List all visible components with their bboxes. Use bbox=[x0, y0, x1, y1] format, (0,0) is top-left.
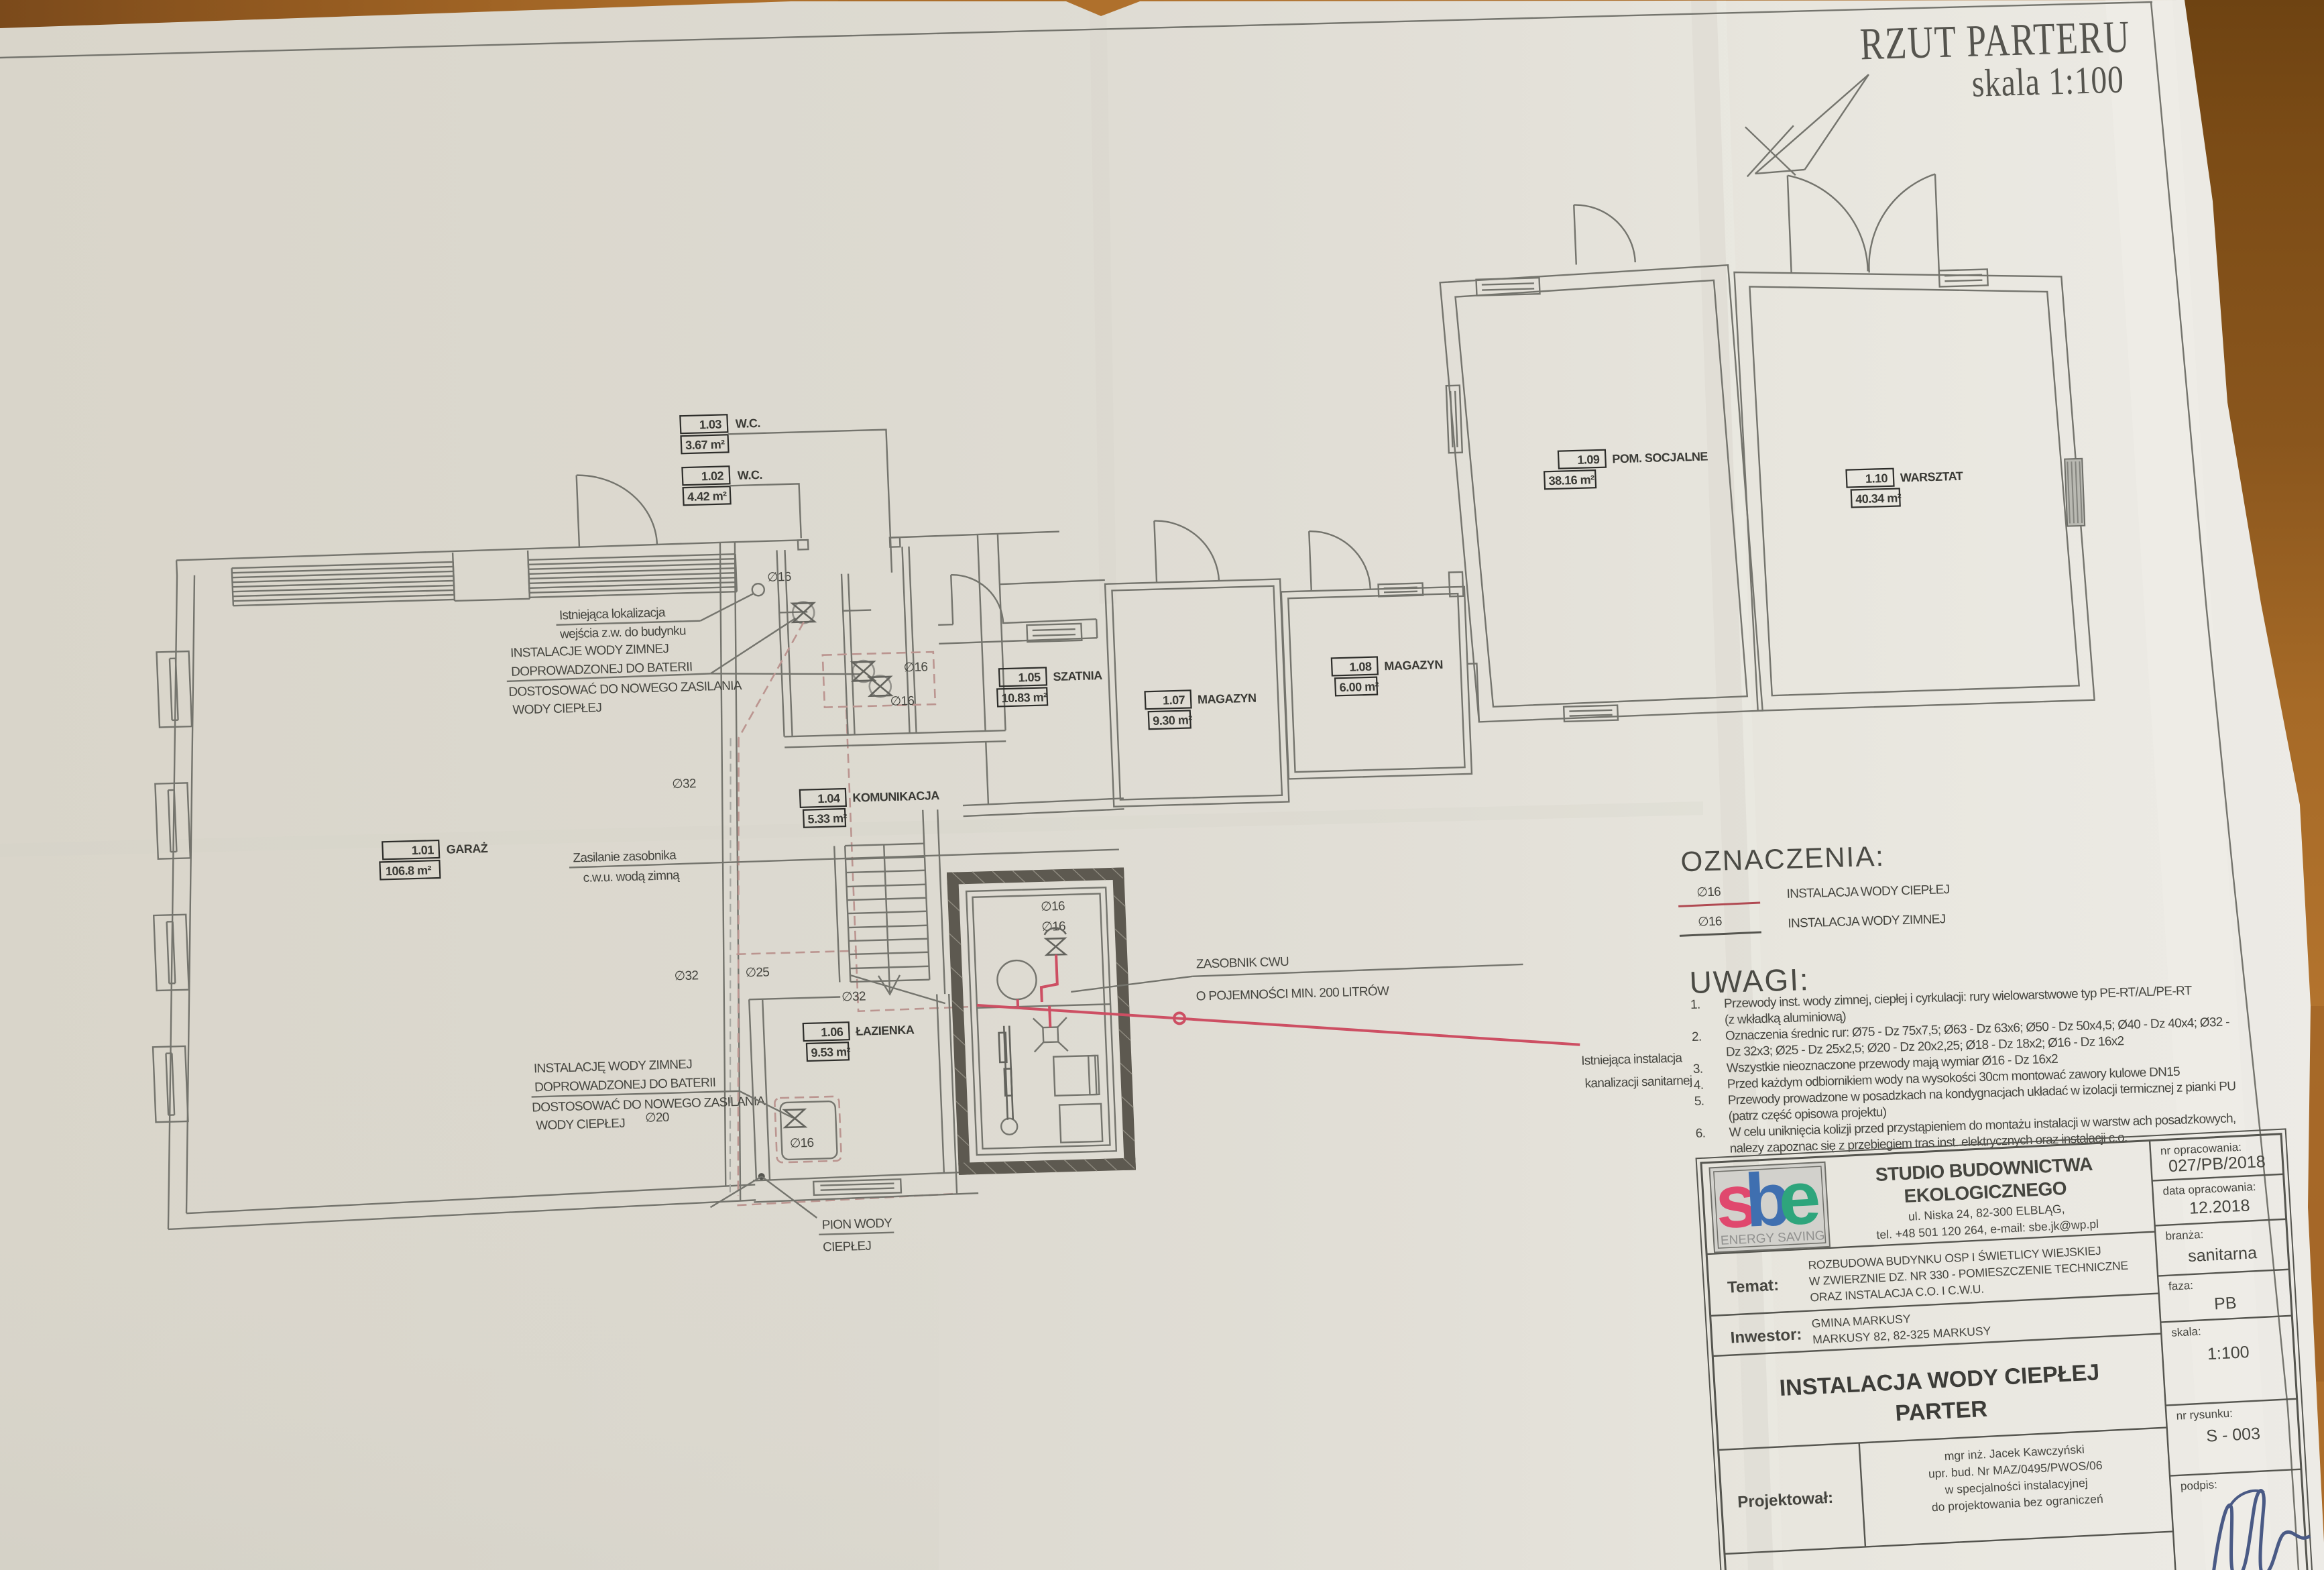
svg-text:PB: PB bbox=[2213, 1294, 2237, 1314]
svg-text:1.10: 1.10 bbox=[1865, 471, 1888, 486]
svg-text:S - 003: S - 003 bbox=[2206, 1424, 2261, 1446]
svg-text:1.03: 1.03 bbox=[699, 418, 721, 432]
svg-text:1.: 1. bbox=[1690, 998, 1700, 1012]
svg-text:4.: 4. bbox=[1693, 1078, 1703, 1092]
svg-text:skala:: skala: bbox=[2171, 1325, 2202, 1339]
svg-text:OZNACZENIA:: OZNACZENIA: bbox=[1680, 840, 1885, 877]
svg-text:Zasilanie zasobnika: Zasilanie zasobnika bbox=[573, 848, 677, 865]
svg-text:sanitarna: sanitarna bbox=[2187, 1243, 2258, 1266]
svg-text:W.C.: W.C. bbox=[738, 468, 763, 482]
svg-text:2.: 2. bbox=[1692, 1030, 1702, 1044]
svg-text:WODY CIEPŁEJ: WODY CIEPŁEJ bbox=[536, 1117, 626, 1133]
svg-text:branża:: branża: bbox=[2165, 1228, 2204, 1243]
svg-text:1.07: 1.07 bbox=[1163, 693, 1185, 708]
svg-text:Istniejąca instalacja: Istniejąca instalacja bbox=[1581, 1051, 1683, 1068]
svg-text:1.01: 1.01 bbox=[411, 843, 434, 857]
svg-text:1.04: 1.04 bbox=[817, 791, 840, 805]
svg-text:6.00 m²: 6.00 m² bbox=[1339, 680, 1379, 695]
svg-text:4.42 m²: 4.42 m² bbox=[687, 489, 728, 504]
svg-text:∅16: ∅16 bbox=[767, 570, 792, 585]
svg-text:GARAŻ: GARAŻ bbox=[446, 842, 488, 856]
svg-text:3.: 3. bbox=[1693, 1062, 1703, 1076]
svg-text:ŁAZIENKA: ŁAZIENKA bbox=[856, 1023, 915, 1038]
svg-text:SZATNIA: SZATNIA bbox=[1053, 669, 1102, 683]
svg-text:W.C.: W.C. bbox=[735, 416, 760, 431]
svg-text:12.2018: 12.2018 bbox=[2189, 1196, 2250, 1217]
svg-text:3.67 m²: 3.67 m² bbox=[685, 437, 725, 452]
svg-text:∅16: ∅16 bbox=[890, 694, 915, 709]
svg-text:∅16: ∅16 bbox=[789, 1136, 814, 1151]
svg-text:∅16: ∅16 bbox=[1698, 915, 1723, 930]
svg-text:POM. SOCJALNE: POM. SOCJALNE bbox=[1612, 449, 1708, 465]
svg-text:Inwestor:: Inwestor: bbox=[1730, 1325, 1802, 1347]
svg-text:ZASOBNIK CWU: ZASOBNIK CWU bbox=[1196, 955, 1289, 972]
svg-text:UWAGI:: UWAGI: bbox=[1689, 962, 1810, 1000]
svg-text:40.34 m²: 40.34 m² bbox=[1855, 491, 1902, 506]
svg-text:PARTER: PARTER bbox=[1894, 1396, 1988, 1426]
svg-text:∅32: ∅32 bbox=[841, 989, 866, 1004]
svg-text:faza:: faza: bbox=[2168, 1279, 2194, 1293]
svg-text:PION WODY: PION WODY bbox=[821, 1217, 892, 1233]
svg-text:1.05: 1.05 bbox=[1018, 671, 1041, 685]
svg-text:9.53 m²: 9.53 m² bbox=[811, 1045, 851, 1060]
svg-text:1.06: 1.06 bbox=[821, 1025, 844, 1039]
svg-text:CIEPŁEJ: CIEPŁEJ bbox=[823, 1239, 872, 1255]
svg-text:6.: 6. bbox=[1695, 1127, 1705, 1141]
svg-text:WODY CIEPŁEJ: WODY CIEPŁEJ bbox=[512, 701, 602, 718]
svg-text:∅32: ∅32 bbox=[672, 777, 697, 791]
svg-text:5.: 5. bbox=[1694, 1095, 1704, 1109]
svg-text:Istniejąca lokalizacja: Istniejąca lokalizacja bbox=[559, 606, 666, 622]
svg-text:38.16 m²: 38.16 m² bbox=[1548, 473, 1594, 488]
svg-text:∅25: ∅25 bbox=[745, 965, 770, 980]
svg-text:9.30 m²: 9.30 m² bbox=[1153, 713, 1193, 728]
svg-text:5.33 m²: 5.33 m² bbox=[807, 811, 848, 826]
svg-text:1.02: 1.02 bbox=[701, 469, 724, 484]
svg-text:MAGAZYN: MAGAZYN bbox=[1384, 658, 1443, 673]
svg-text:1:100: 1:100 bbox=[2207, 1343, 2250, 1363]
svg-text:∅16: ∅16 bbox=[1696, 885, 1721, 900]
svg-text:Temat:: Temat: bbox=[1727, 1276, 1779, 1297]
svg-text:WARSZTAT: WARSZTAT bbox=[1900, 469, 1964, 485]
svg-text:kanalizacji sanitarnej: kanalizacji sanitarnej bbox=[1584, 1074, 1692, 1090]
svg-text:∅16: ∅16 bbox=[1041, 899, 1065, 914]
svg-text:∅32: ∅32 bbox=[674, 968, 699, 983]
svg-text:podpis:: podpis: bbox=[2180, 1478, 2217, 1493]
svg-text:skala 1:100: skala 1:100 bbox=[1971, 58, 2124, 105]
svg-text:1.08: 1.08 bbox=[1349, 660, 1372, 674]
svg-text:∅16: ∅16 bbox=[903, 660, 928, 675]
svg-text:106.8 m²: 106.8 m² bbox=[386, 863, 432, 878]
svg-text:e: e bbox=[1776, 1154, 1823, 1241]
svg-text:∅20: ∅20 bbox=[645, 1111, 670, 1125]
svg-text:KOMUNIKACJA: KOMUNIKACJA bbox=[852, 789, 940, 805]
svg-text:c.w.u. wodą zimną: c.w.u. wodą zimną bbox=[583, 868, 680, 885]
svg-text:∅16: ∅16 bbox=[1041, 919, 1066, 934]
svg-text:10.83 m²: 10.83 m² bbox=[1001, 690, 1047, 705]
svg-text:MAGAZYN: MAGAZYN bbox=[1198, 691, 1257, 706]
svg-text:1.09: 1.09 bbox=[1577, 453, 1600, 467]
